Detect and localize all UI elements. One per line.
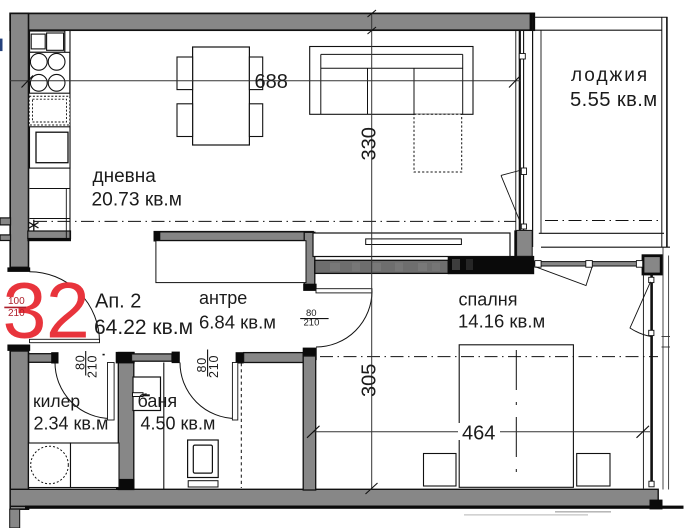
svg-text:лоджия: лоджия bbox=[571, 65, 649, 86]
svg-text:330: 330 bbox=[359, 127, 381, 160]
svg-text:100: 100 bbox=[8, 296, 25, 307]
svg-text:210: 210 bbox=[86, 355, 100, 378]
svg-text:305: 305 bbox=[359, 364, 381, 397]
svg-text:64.22 кв.м: 64.22 кв.м bbox=[94, 316, 193, 339]
svg-text:210: 210 bbox=[8, 308, 25, 319]
svg-text:4.50 кв.м: 4.50 кв.м bbox=[141, 414, 216, 434]
svg-text:464: 464 bbox=[462, 423, 495, 445]
svg-text:210: 210 bbox=[207, 355, 221, 378]
svg-text:Ап. 2: Ап. 2 bbox=[95, 291, 141, 313]
svg-text:баня: баня bbox=[138, 391, 178, 411]
svg-text:688: 688 bbox=[255, 71, 288, 93]
svg-text:2.34 кв.м: 2.34 кв.м bbox=[34, 414, 109, 434]
svg-text:5.55 кв.м: 5.55 кв.м bbox=[570, 89, 658, 111]
svg-text:6.84 кв.м: 6.84 кв.м bbox=[199, 312, 276, 333]
svg-text:дневна: дневна bbox=[93, 166, 157, 187]
svg-text:антре: антре bbox=[199, 288, 247, 308]
svg-text:килер: килер bbox=[33, 391, 80, 411]
svg-text:спалня: спалня bbox=[459, 290, 518, 310]
svg-text:20.73 кв.м: 20.73 кв.м bbox=[92, 190, 182, 211]
svg-text:210: 210 bbox=[304, 317, 320, 328]
svg-text:14.16 кв.м: 14.16 кв.м bbox=[458, 311, 545, 332]
